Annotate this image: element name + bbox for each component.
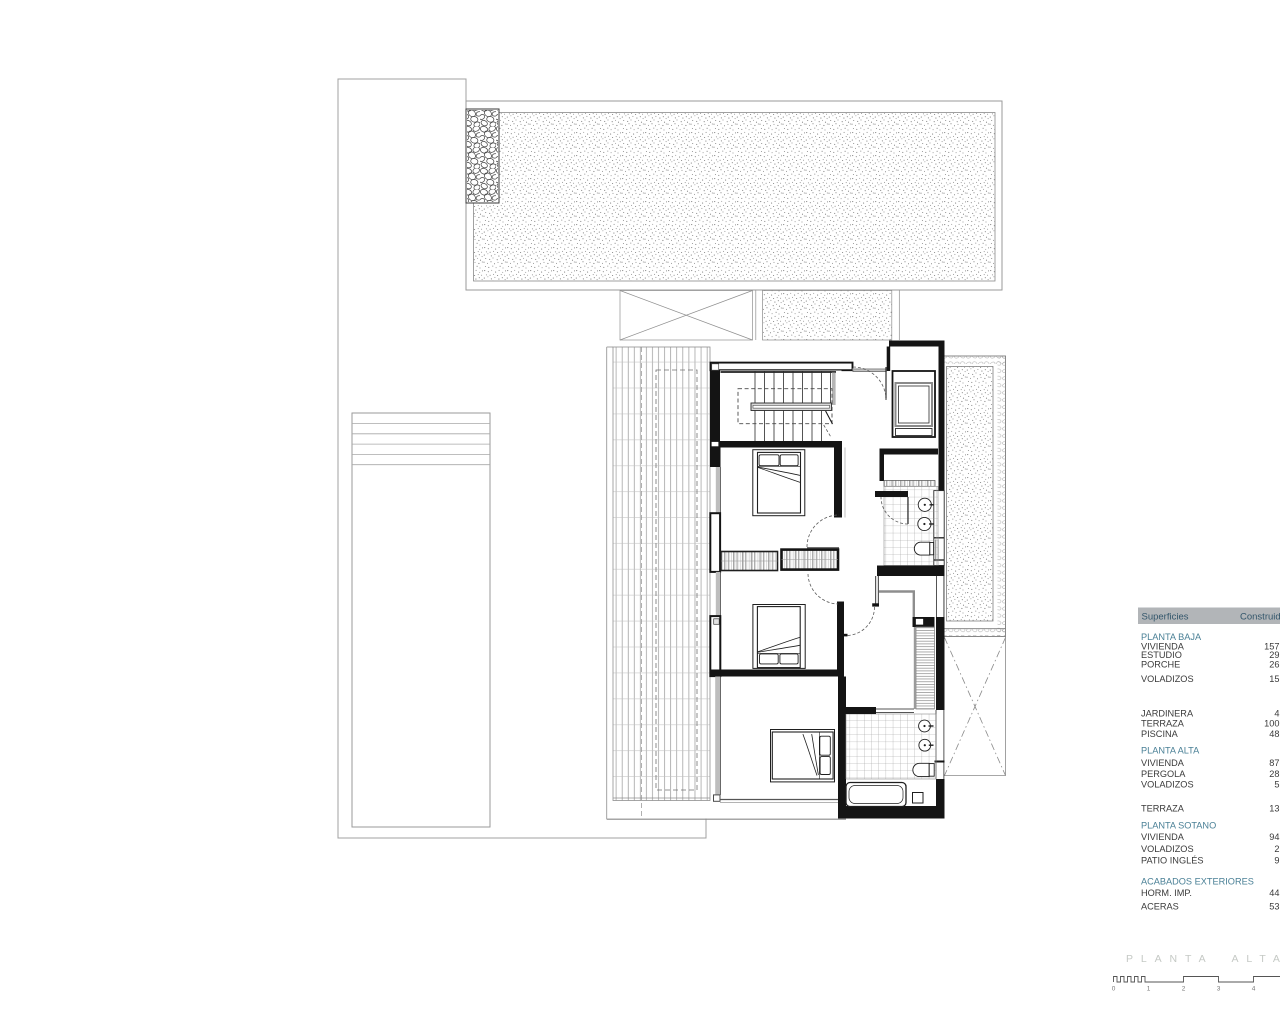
svg-text:13: 13 bbox=[1269, 804, 1279, 814]
svg-text:PATIO INGLÉS: PATIO INGLÉS bbox=[1141, 856, 1203, 866]
svg-text:ACABADOS EXTERIORES: ACABADOS EXTERIORES bbox=[1141, 877, 1254, 887]
svg-text:28: 28 bbox=[1269, 769, 1279, 779]
svg-text:VOLADIZOS: VOLADIZOS bbox=[1141, 844, 1194, 854]
svg-text:HORM. IMP.: HORM. IMP. bbox=[1141, 888, 1192, 898]
svg-text:PLANTA BAJA: PLANTA BAJA bbox=[1141, 632, 1202, 642]
svg-text:ACERAS: ACERAS bbox=[1141, 902, 1179, 912]
svg-text:4: 4 bbox=[1252, 986, 1256, 993]
svg-text:VOLADIZOS: VOLADIZOS bbox=[1141, 780, 1194, 790]
svg-text:2: 2 bbox=[1182, 986, 1186, 993]
svg-text:JARDINERA: JARDINERA bbox=[1141, 709, 1194, 719]
svg-text:0: 0 bbox=[1112, 986, 1116, 993]
svg-text:53: 53 bbox=[1269, 902, 1279, 912]
svg-text:26: 26 bbox=[1269, 660, 1279, 670]
svg-text:48: 48 bbox=[1269, 729, 1279, 739]
svg-text:Construida: Construida bbox=[1240, 612, 1280, 623]
svg-text:44: 44 bbox=[1269, 888, 1279, 898]
svg-text:29: 29 bbox=[1269, 650, 1279, 660]
svg-text:9: 9 bbox=[1274, 856, 1279, 866]
svg-text:94: 94 bbox=[1269, 832, 1279, 842]
svg-text:TERRAZA: TERRAZA bbox=[1141, 804, 1185, 814]
svg-text:VIVIENDA: VIVIENDA bbox=[1141, 832, 1185, 842]
svg-text:4: 4 bbox=[1274, 709, 1279, 719]
svg-text:3: 3 bbox=[1217, 986, 1221, 993]
svg-text:ESTUDIO: ESTUDIO bbox=[1141, 650, 1182, 660]
svg-text:15: 15 bbox=[1269, 674, 1279, 684]
svg-text:TERRAZA: TERRAZA bbox=[1141, 719, 1185, 729]
svg-text:Superficies: Superficies bbox=[1142, 612, 1189, 623]
svg-text:VOLADIZOS: VOLADIZOS bbox=[1141, 674, 1194, 684]
svg-text:PISCINA: PISCINA bbox=[1141, 729, 1179, 739]
svg-text:VIVIENDA: VIVIENDA bbox=[1141, 758, 1185, 768]
svg-text:87: 87 bbox=[1269, 758, 1279, 768]
svg-text:100: 100 bbox=[1264, 719, 1279, 729]
svg-text:1: 1 bbox=[1147, 986, 1151, 993]
svg-text:PORCHE: PORCHE bbox=[1141, 660, 1180, 670]
svg-text:5: 5 bbox=[1274, 780, 1279, 790]
svg-text:PLANTA: PLANTA bbox=[1126, 953, 1213, 965]
svg-text:PLANTA ALTA: PLANTA ALTA bbox=[1141, 746, 1200, 756]
svg-text:PLANTA SOTANO: PLANTA SOTANO bbox=[1141, 821, 1216, 831]
svg-text:2: 2 bbox=[1274, 844, 1279, 854]
svg-text:ALTA: ALTA bbox=[1232, 953, 1280, 965]
svg-text:PERGOLA: PERGOLA bbox=[1141, 769, 1186, 779]
